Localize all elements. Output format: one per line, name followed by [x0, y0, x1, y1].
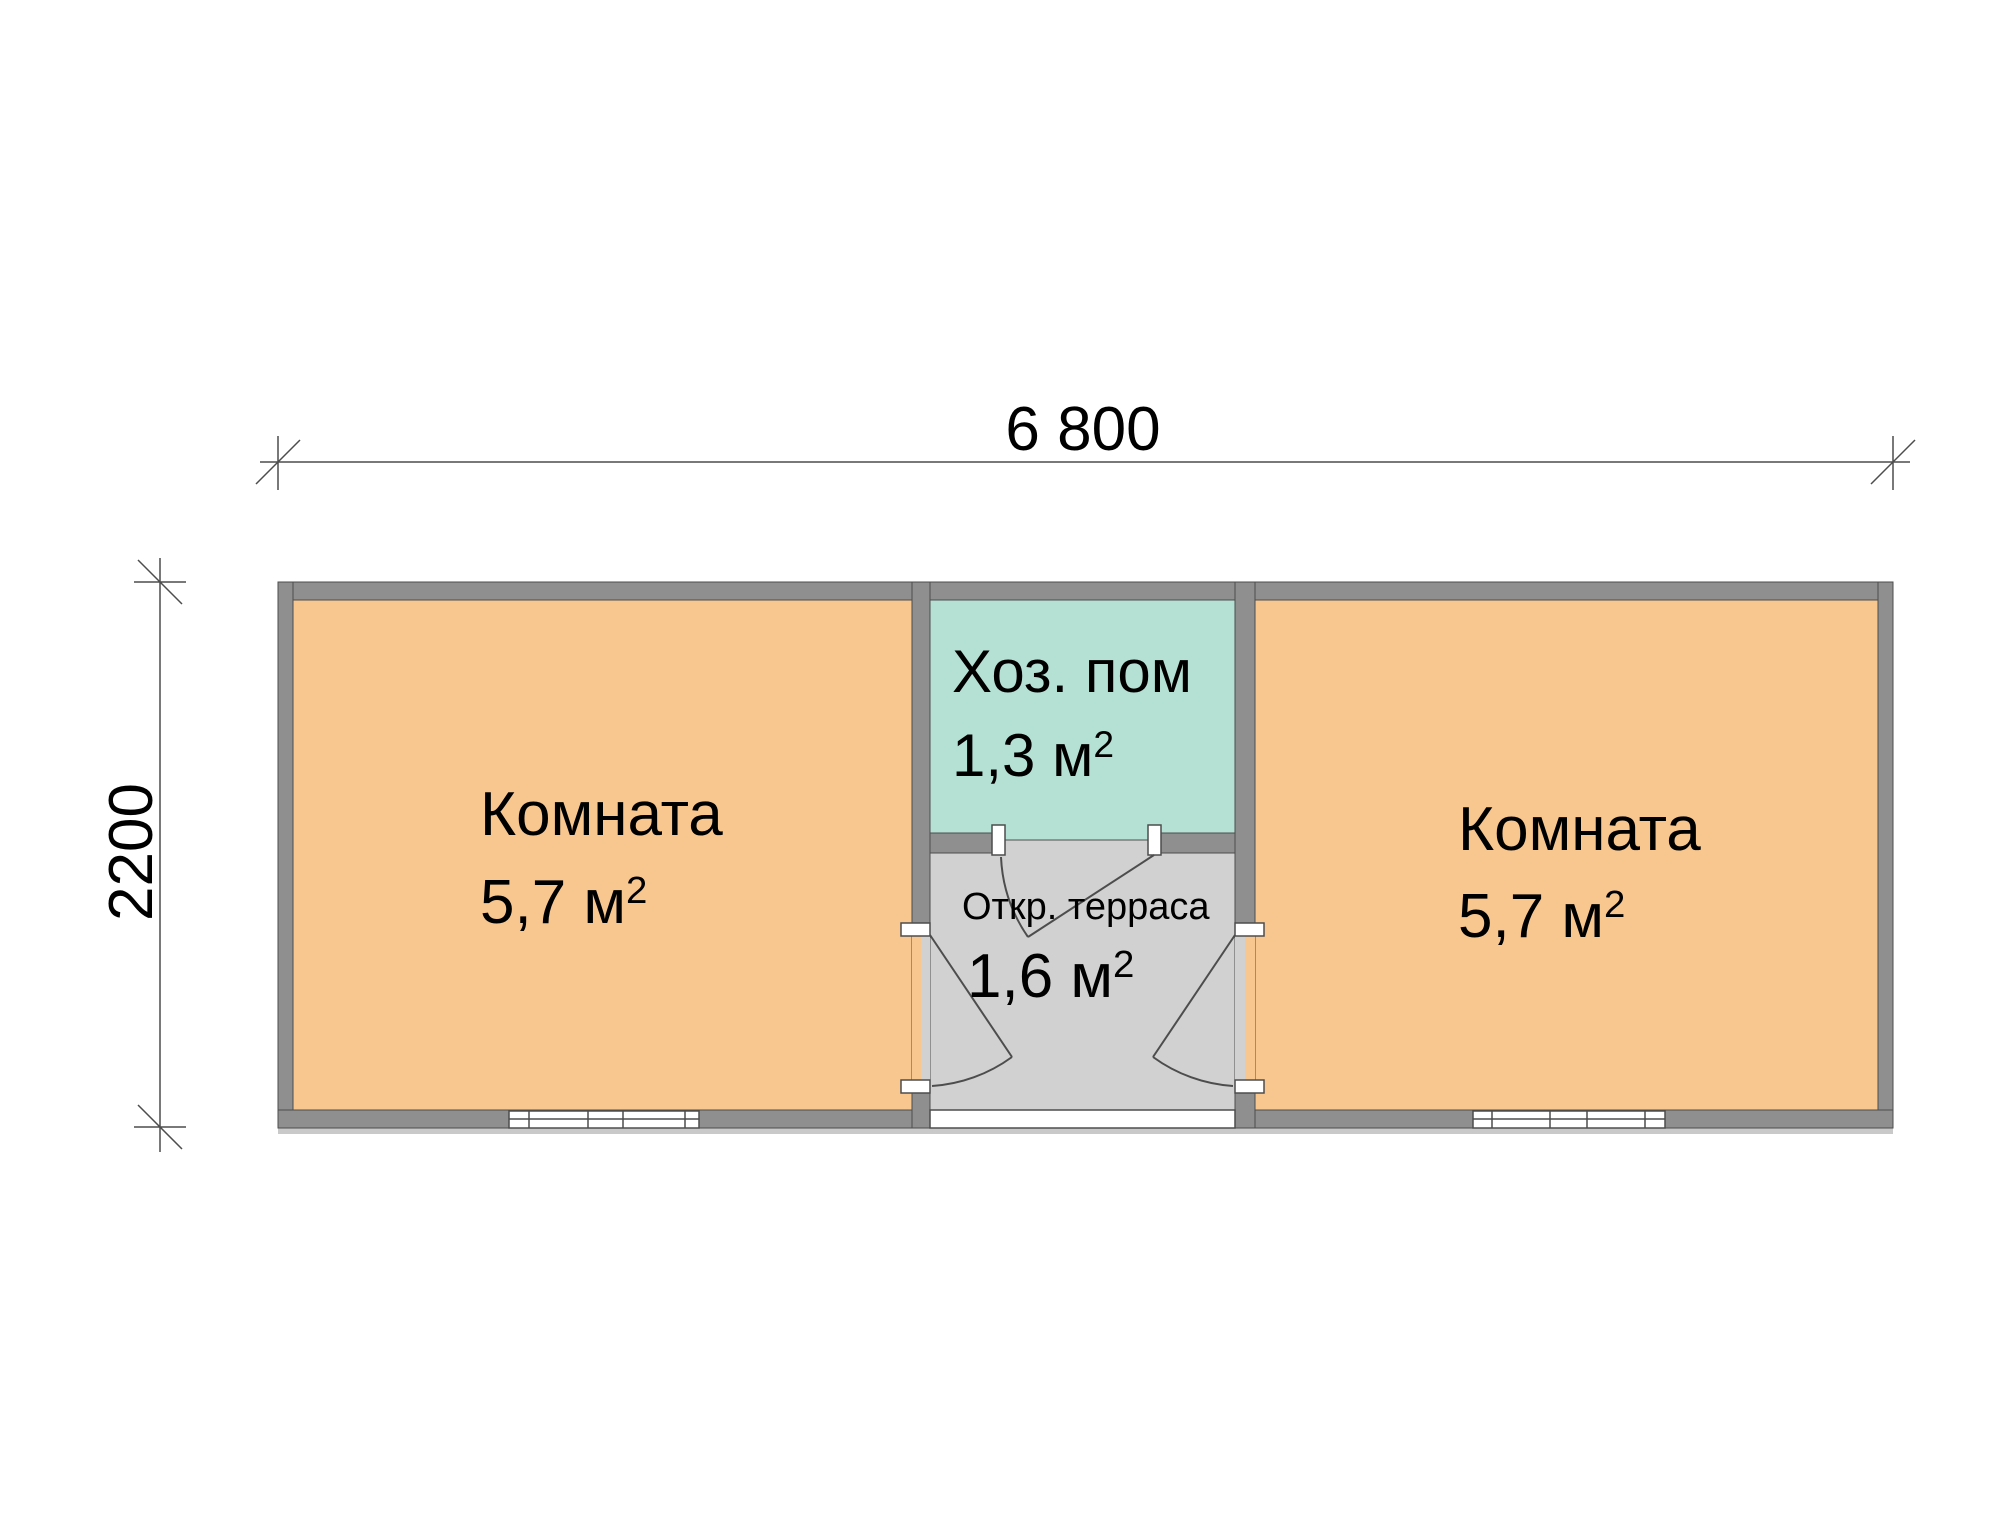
width-dimension-label: 6 800 [978, 399, 1188, 461]
right-room-area: 5,7 м2 [1458, 886, 1625, 948]
terrace-area: 1,6 м2 [967, 946, 1134, 1008]
utility-room-name: Хоз. пом [952, 642, 1192, 702]
top-wall [278, 582, 1893, 600]
utility-door-jamb-left [992, 825, 1005, 855]
left-door-jamb-top [901, 923, 930, 936]
width-dimension-tick-right [1871, 436, 1915, 490]
right-room-area-value: 5,7 м [1458, 882, 1604, 951]
right-doorway-floor [1245, 936, 1255, 1080]
right-door-jamb-bottom [1235, 1080, 1264, 1093]
mid-right-wall-upper [1235, 582, 1255, 923]
utility-room-area: 1,3 м2 [952, 726, 1114, 786]
right-window [1473, 1111, 1665, 1128]
terrace-area-sup: 2 [1113, 943, 1134, 986]
left-doorway-floor-terrace-side [921, 936, 930, 1080]
floor-plan: 6 800 2200 Комната 5,7 м2 Комната 5,7 м2… [0, 0, 2000, 1539]
utility-wall-left-segment [930, 833, 992, 853]
width-dimension-tick-left [256, 436, 300, 490]
utility-wall-right-segment [1161, 833, 1235, 853]
left-room-area-sup: 2 [626, 869, 647, 912]
mid-right-wall-lower [1235, 1093, 1255, 1128]
terrace-name: Откр. терраса [962, 888, 1209, 926]
bottom-wall-shadow [278, 1128, 1893, 1134]
mid-left-wall-upper [912, 582, 930, 923]
left-room-name: Комната [480, 784, 723, 846]
left-wall [278, 582, 293, 1128]
left-door-jamb-bottom [901, 1080, 930, 1093]
terrace-area-value: 1,6 м [967, 942, 1113, 1011]
mid-left-wall-lower [912, 1093, 930, 1128]
right-wall [1878, 582, 1893, 1128]
left-room-floor [293, 600, 912, 1110]
utility-room-area-value: 1,3 м [952, 722, 1093, 789]
utility-room-floor [930, 600, 1235, 840]
left-window [509, 1111, 699, 1128]
right-doorway-floor-terrace-side [1235, 936, 1245, 1080]
utility-door-jamb-right [1148, 825, 1161, 855]
right-room-area-sup: 2 [1604, 883, 1625, 926]
right-door-jamb-top [1235, 923, 1264, 936]
utility-room-area-sup: 2 [1093, 723, 1114, 765]
left-room-area-value: 5,7 м [480, 868, 626, 937]
left-room-area: 5,7 м2 [480, 872, 647, 934]
right-room-name: Комната [1458, 799, 1701, 861]
height-dimension-label: 2200 [101, 782, 163, 922]
terrace-threshold [930, 1110, 1235, 1128]
left-doorway-floor [912, 936, 921, 1080]
